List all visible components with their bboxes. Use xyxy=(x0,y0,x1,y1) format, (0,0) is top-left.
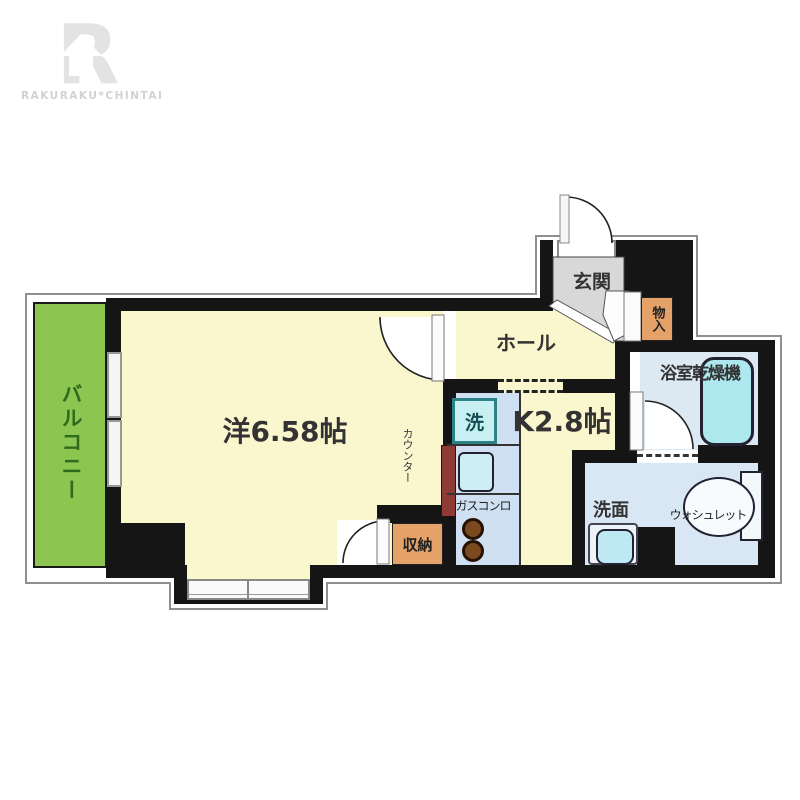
closet-door-panel xyxy=(377,519,389,564)
entry-storage-box: 物入 xyxy=(641,297,673,341)
floorplan-page: { "brand": { "logo_letter": "R", "logo_t… xyxy=(0,0,800,800)
counter-label: カウンター xyxy=(396,400,418,510)
entrance-door-panel xyxy=(560,195,569,243)
gas-stove-label: ガスコンロ xyxy=(443,497,523,513)
logo-text: RAKURAKU*CHINTAI xyxy=(21,90,171,104)
washstand-basin xyxy=(588,523,638,565)
washstand-label: 洗面 xyxy=(583,498,639,520)
bathroom-door-panel xyxy=(630,392,643,450)
kitchen-divider-2 xyxy=(447,493,521,495)
western-room-label: 洋6.58帖 xyxy=(195,412,375,448)
closet-label: 収納 xyxy=(393,524,442,564)
room-door-panel xyxy=(432,315,444,381)
kitchen-sink xyxy=(458,452,494,492)
washing-machine-label: 洗 xyxy=(455,401,494,441)
entry-storage-label: 物入 xyxy=(642,298,672,340)
kitchen-divider-1 xyxy=(447,444,521,446)
balcony-label: バルコニー xyxy=(51,338,91,548)
closet-box: 収納 xyxy=(392,523,443,565)
logo-house-icon xyxy=(58,32,104,78)
hall-label: ホール xyxy=(486,328,566,354)
stove-burner-2 xyxy=(462,540,484,562)
storage-door xyxy=(624,292,641,341)
stove-burner-1 xyxy=(462,518,484,540)
kitchen-label: K2.8帖 xyxy=(496,402,628,438)
bathroom-dryer-label: 浴室乾燥機 xyxy=(642,360,758,382)
washlet-label: ウォシュレット xyxy=(658,506,758,522)
washing-machine: 洗 xyxy=(452,398,497,444)
entrance-label: 玄関 xyxy=(564,268,620,292)
brand-logo: R RAKURAKU*CHINTAI xyxy=(18,14,178,106)
